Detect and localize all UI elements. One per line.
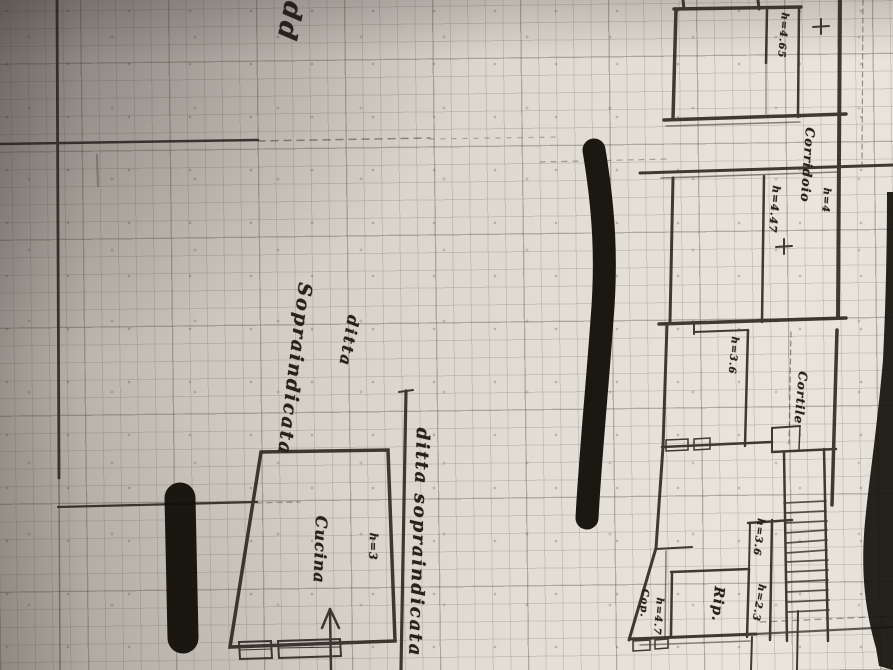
- room-label-cop: Cop.: [637, 588, 650, 618]
- scanned-floorplan-photo: odd ditta Sopraindicata ditta sopraindic…: [0, 0, 893, 670]
- photo-edge-shadow: [863, 192, 893, 670]
- height-label-corridoio: h=4: [819, 187, 832, 213]
- room-label-cucina: Cucina: [310, 515, 331, 584]
- room-label-rip: Rip.: [708, 586, 727, 623]
- height-label-cucina: h=3: [366, 533, 380, 561]
- redaction-stroke-left: [180, 498, 183, 638]
- floorplan-linework: [0, 0, 893, 670]
- redaction-stroke-center: [587, 150, 604, 518]
